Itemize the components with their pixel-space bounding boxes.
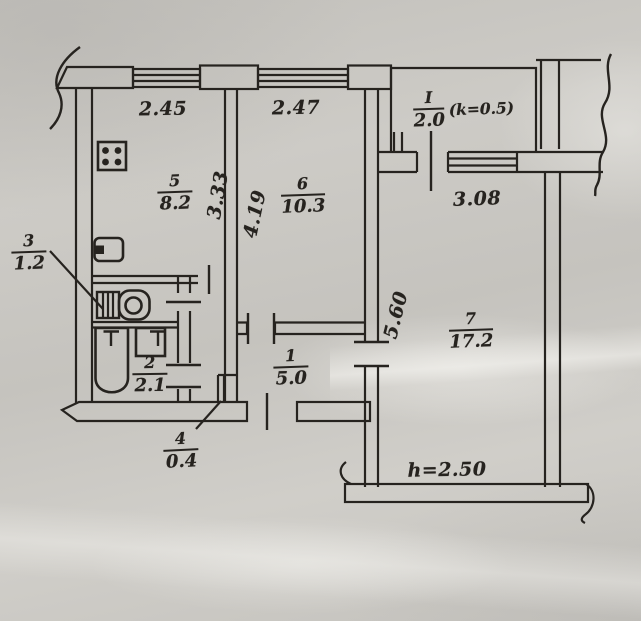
bathtub-icon	[96, 328, 129, 392]
washbasin-icon	[136, 328, 166, 356]
dim-ceiling-height: h=2.50	[407, 458, 486, 481]
room-number: I	[413, 89, 445, 110]
room-area: 5.0	[273, 367, 309, 388]
room-area: 2.0	[413, 109, 445, 130]
window-room6	[258, 69, 348, 87]
room-number: 3	[11, 232, 47, 253]
room-area: 10.3	[281, 195, 326, 217]
wall-room6-room7	[354, 89, 389, 487]
room-area: 8.2	[157, 192, 193, 213]
toilet-icon	[97, 291, 150, 320]
wall-kitchen-bottom	[92, 265, 209, 294]
wall-entrance	[62, 393, 370, 430]
room-label-kitchen: 5 8.2	[157, 172, 194, 213]
room-label-closet: 4 0.4	[162, 430, 199, 472]
kitchen-sink-icon	[95, 238, 124, 261]
plan-linework	[0, 0, 641, 621]
room-label-wc: 3 1.2	[11, 232, 48, 273]
dim-room6-width: 2.47	[272, 97, 321, 120]
balcony-coefficient: (k=0.5)	[448, 100, 514, 118]
closet-outline	[218, 375, 237, 402]
room-number: 4	[162, 430, 198, 452]
room-area: 0.4	[163, 450, 199, 472]
wall-left	[76, 88, 92, 403]
wall-wc-bath-divider	[92, 322, 178, 328]
wall-room7-right	[545, 172, 560, 487]
room-label-room7: 7 17.2	[448, 310, 493, 352]
dim-room7-width: 3.08	[452, 187, 501, 211]
room-number: 5	[157, 172, 193, 193]
room-label-hall: 1 5.0	[273, 347, 310, 388]
room-number: 7	[448, 310, 493, 332]
stove-icon	[98, 142, 126, 170]
room-area: 2.1	[132, 375, 167, 396]
room-label-bathroom: 2 2.1	[132, 355, 168, 396]
room-number: 2	[132, 355, 167, 376]
window-room7	[448, 152, 517, 172]
room-number: 6	[280, 175, 325, 197]
paper-break-line	[595, 54, 611, 196]
room-area: 17.2	[449, 330, 494, 352]
room-number: 1	[273, 347, 309, 368]
dim-kitchen-width: 2.45	[139, 98, 188, 121]
wall-kitchen-room6	[225, 88, 237, 403]
wall-room6-bottom	[237, 313, 365, 344]
room-label-balcony: I 2.0 (k=0.5)	[413, 89, 446, 130]
window-kitchen	[133, 69, 200, 87]
room-area: 1.2	[11, 252, 47, 273]
wall-wc-right	[166, 276, 201, 403]
room-label-room6: 6 10.3	[280, 175, 325, 217]
floor-plan-scan: 2.45 2.47 3.33 4.19 3.08 5.60 h=2.50 5 8…	[0, 0, 641, 621]
